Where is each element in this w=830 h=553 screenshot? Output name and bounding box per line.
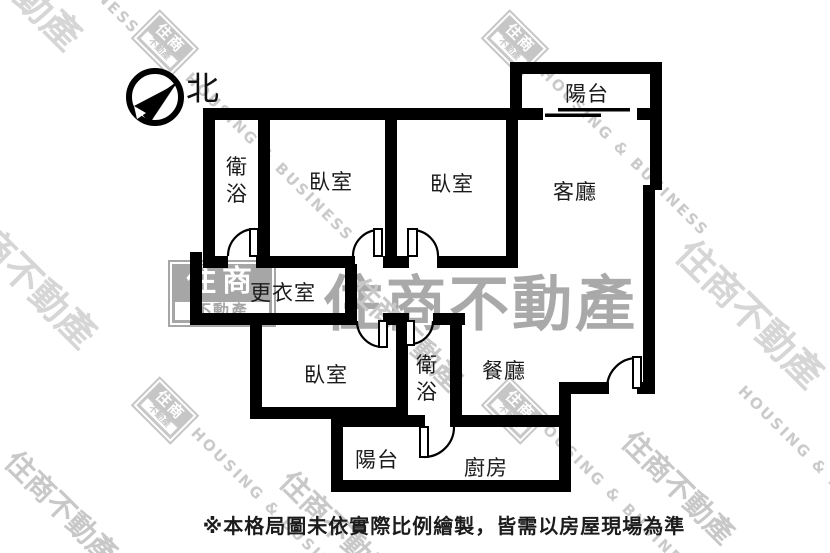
- room-label-balcony-top: 陽台: [547, 78, 627, 108]
- room-label-balcony-bottom: 陽台: [337, 444, 417, 474]
- room-label-bedroom-3: 臥室: [286, 359, 366, 389]
- north-label: 北: [186, 62, 219, 110]
- room-label-walkin-closet: 更衣室: [243, 277, 323, 307]
- room-label-bathroom-top: 衛浴: [224, 154, 249, 208]
- north-compass-icon: [129, 71, 181, 123]
- room-label-bedroom-1: 臥室: [291, 166, 371, 196]
- room-label-dining-room: 餐廳: [464, 355, 544, 385]
- room-label-kitchen: 廚房: [446, 452, 526, 482]
- floorplan-canvas: 住商不動產 住商不動產 住商不動產 住商不動產 住商不動產 住商不動產 住商不動…: [0, 0, 830, 553]
- room-label-living-room: 客廳: [535, 176, 615, 206]
- room-label-bedroom-2: 臥室: [412, 168, 492, 198]
- balcony-window: [545, 108, 630, 117]
- disclaimer-note: ※本格局圖未依實際比例繪製，皆需以房屋現場為準: [58, 510, 830, 539]
- room-label-bathroom-bottom: 衛浴: [414, 352, 439, 406]
